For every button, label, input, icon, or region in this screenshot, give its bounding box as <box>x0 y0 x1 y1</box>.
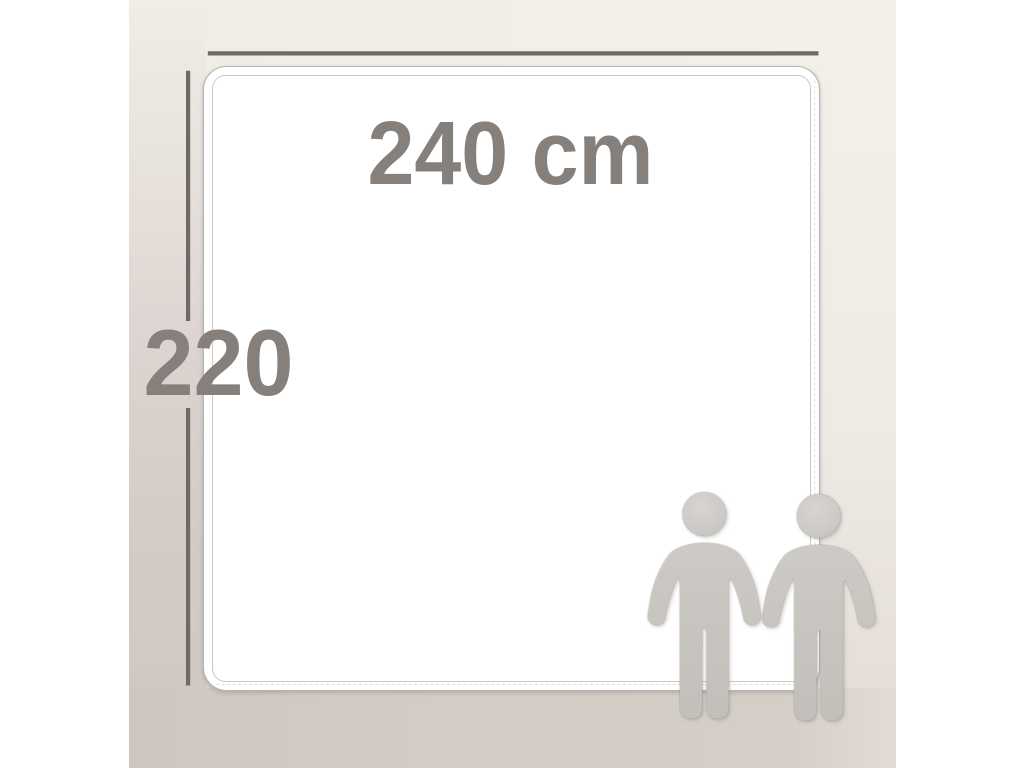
svg-text:220: 220 <box>144 310 294 415</box>
svg-text:240 cm: 240 cm <box>368 104 654 204</box>
